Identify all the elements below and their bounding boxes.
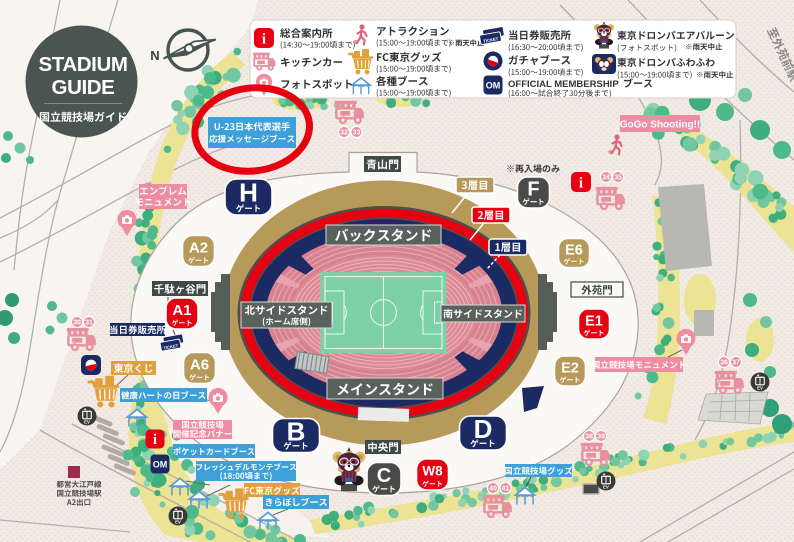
svg-text:E1: E1	[585, 313, 603, 329]
svg-text:GoGo Shooting!!: GoGo Shooting!!	[620, 120, 701, 131]
svg-text:N: N	[150, 48, 159, 63]
svg-text:W8: W8	[422, 463, 443, 478]
svg-text:36: 36	[720, 360, 728, 367]
svg-text:EV: EV	[175, 520, 181, 525]
svg-text:C: C	[377, 465, 391, 487]
svg-text:EV: EV	[84, 420, 90, 425]
svg-text:A1: A1	[172, 302, 191, 319]
svg-text:OFFICIAL MEMBERSHIP: OFFICIAL MEMBERSHIP	[508, 79, 619, 90]
svg-text:37: 37	[732, 360, 740, 367]
svg-text:39: 39	[597, 434, 605, 441]
svg-text:i: i	[262, 32, 266, 48]
svg-text:H: H	[239, 178, 258, 208]
svg-text:34: 34	[602, 175, 610, 182]
svg-text:35: 35	[614, 175, 622, 182]
svg-text:33: 33	[353, 130, 361, 137]
svg-text:i: i	[153, 432, 157, 448]
svg-text:31: 31	[85, 320, 93, 327]
svg-text:B: B	[287, 416, 306, 446]
svg-text:F: F	[527, 179, 539, 201]
svg-text:OM: OM	[153, 459, 168, 469]
svg-text:30: 30	[73, 320, 81, 327]
svg-text:41: 41	[502, 486, 510, 493]
svg-text:A2: A2	[189, 239, 208, 256]
svg-text:32: 32	[340, 130, 348, 137]
svg-text:GUIDE: GUIDE	[52, 76, 115, 99]
svg-text:i: i	[579, 176, 583, 192]
svg-text:STADIUM: STADIUM	[38, 53, 127, 76]
svg-text:A6: A6	[190, 356, 209, 373]
svg-text:EV: EV	[603, 485, 609, 490]
svg-text:E2: E2	[561, 360, 579, 376]
svg-text:D: D	[474, 414, 493, 444]
svg-text:OM: OM	[486, 80, 501, 90]
svg-text:38: 38	[585, 434, 593, 441]
svg-text:E6: E6	[565, 242, 583, 258]
svg-text:EV: EV	[757, 386, 763, 391]
svg-text:40: 40	[489, 486, 497, 493]
